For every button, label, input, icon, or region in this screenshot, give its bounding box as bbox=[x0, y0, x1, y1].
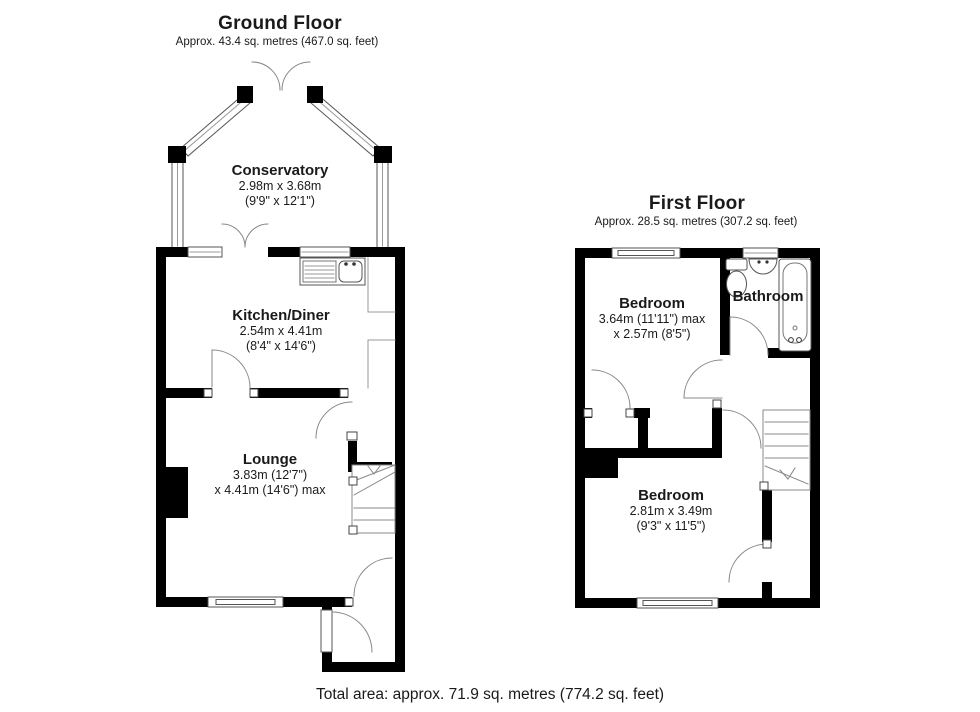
room-name: Lounge bbox=[214, 451, 325, 468]
door-arc bbox=[723, 410, 761, 448]
french-door-arc bbox=[222, 224, 245, 247]
tap bbox=[757, 260, 760, 263]
ground-floor-plan bbox=[156, 62, 405, 672]
french-door-arc bbox=[282, 62, 310, 90]
corner-post bbox=[307, 86, 323, 103]
chimney-breast bbox=[575, 448, 618, 478]
room-label-bedroom2: Bedroom 2.81m x 3.49m (9'3" x 11'5") bbox=[630, 487, 713, 534]
room-dim-metric: 3.83m (12'7") bbox=[214, 468, 325, 483]
corner-post bbox=[168, 146, 186, 163]
chimney-breast bbox=[156, 467, 188, 518]
total-area-text: Total area: approx. 71.9 sq. metres (774… bbox=[316, 686, 664, 704]
glazing-line bbox=[618, 251, 674, 256]
door-arc bbox=[354, 558, 392, 596]
first-floor-subtitle: Approx. 28.5 sq. metres (307.2 sq. feet) bbox=[595, 216, 798, 228]
kitchen-sink-unit bbox=[300, 258, 365, 285]
room-name: Bedroom bbox=[599, 295, 705, 312]
french-door-arc bbox=[245, 224, 268, 247]
room-name: Bathroom bbox=[733, 288, 804, 305]
conservatory-window-right-angled bbox=[311, 95, 380, 156]
glazing-line bbox=[643, 601, 712, 606]
room-dim-metric: 2.81m x 3.49m bbox=[630, 504, 713, 519]
room-name: Conservatory bbox=[232, 162, 329, 179]
tap bbox=[344, 262, 348, 266]
corner-post bbox=[374, 146, 392, 163]
room-dim-metric: 2.54m x 4.41m bbox=[232, 324, 330, 339]
room-dim-imperial: (9'3" x 11'5") bbox=[630, 519, 713, 534]
bathroom-fixtures bbox=[726, 259, 811, 351]
floorplan-drawing bbox=[0, 0, 980, 712]
ground-floor-stairs bbox=[349, 465, 395, 534]
first-floor-title: First Floor bbox=[649, 193, 745, 215]
glazing-line bbox=[184, 98, 246, 151]
ground-floor-title: Ground Floor bbox=[218, 13, 342, 35]
floorplan-page: Ground Floor Approx. 43.4 sq. metres (46… bbox=[0, 0, 980, 712]
room-dim-imperial: (9'9" x 12'1") bbox=[232, 194, 329, 209]
door-arc bbox=[332, 612, 372, 652]
room-name: Kitchen/Diner bbox=[232, 307, 330, 324]
first-floor-stairs bbox=[760, 410, 810, 490]
room-label-bedroom1: Bedroom 3.64m (11'11") max x 2.57m (8'5"… bbox=[599, 295, 705, 342]
kitchen-counter bbox=[368, 258, 395, 388]
room-dim-metric: 2.98m x 3.68m bbox=[232, 179, 329, 194]
room-label-kitchen: Kitchen/Diner 2.54m x 4.41m (8'4" x 14'6… bbox=[232, 307, 330, 354]
room-dim-imperial: (8'4" x 14'6") bbox=[232, 339, 330, 354]
room-label-bathroom: Bathroom bbox=[733, 288, 804, 305]
room-label-conservatory: Conservatory 2.98m x 3.68m (9'9" x 12'1"… bbox=[232, 162, 329, 209]
ground-floor-windows bbox=[188, 247, 350, 607]
newel-post bbox=[349, 477, 357, 485]
conservatory-structure bbox=[168, 62, 392, 248]
door-arc bbox=[592, 370, 630, 408]
room-dim-imperial: x 4.41m (14'6") max bbox=[214, 483, 325, 498]
door-arc bbox=[729, 544, 767, 582]
sink-bowl bbox=[339, 261, 362, 282]
bathtub bbox=[779, 259, 811, 351]
ground-floor-doors bbox=[212, 224, 392, 652]
basin bbox=[749, 259, 777, 274]
room-dim-metric: 3.64m (11'11") max bbox=[599, 312, 705, 327]
newel-post bbox=[349, 526, 357, 534]
door-arc bbox=[212, 350, 250, 388]
glazing-line bbox=[216, 600, 275, 605]
corner-post bbox=[237, 86, 253, 103]
tap bbox=[765, 260, 768, 263]
conservatory-window-left-angled bbox=[181, 95, 250, 156]
tap bbox=[352, 262, 356, 266]
door-arc bbox=[684, 360, 722, 398]
room-dim-imperial: x 2.57m (8'5") bbox=[599, 327, 705, 342]
room-label-lounge: Lounge 3.83m (12'7") x 4.41m (14'6") max bbox=[214, 451, 325, 498]
front-door-leaf bbox=[321, 610, 332, 652]
ground-floor-subtitle: Approx. 43.4 sq. metres (467.0 sq. feet) bbox=[176, 36, 379, 48]
door-arc bbox=[730, 317, 768, 355]
room-name: Bedroom bbox=[630, 487, 713, 504]
newel-post bbox=[760, 482, 768, 490]
glazing-line bbox=[315, 98, 377, 151]
french-door-arc bbox=[252, 62, 280, 90]
